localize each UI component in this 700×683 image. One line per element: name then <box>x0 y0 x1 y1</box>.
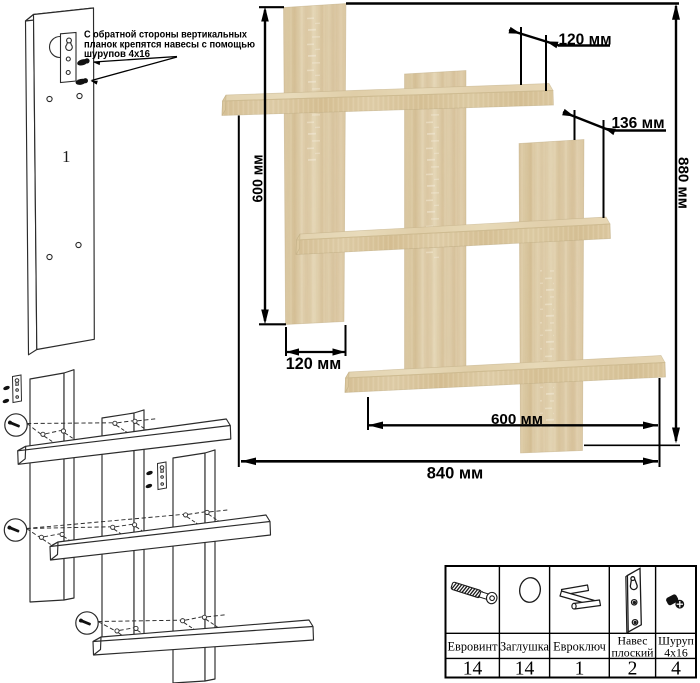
svg-text:1: 1 <box>575 659 585 680</box>
svg-text:14: 14 <box>463 659 483 680</box>
svg-text:880 мм: 880 мм <box>675 157 691 209</box>
svg-text:1: 1 <box>62 147 71 166</box>
svg-text:Евровинт: Евровинт <box>448 640 499 654</box>
svg-text:плоский: плоский <box>612 646 655 660</box>
svg-text:120 мм: 120 мм <box>286 355 341 373</box>
svg-text:Евроключ: Евроключ <box>553 640 606 654</box>
svg-text:4: 4 <box>671 659 681 680</box>
svg-text:120 мм: 120 мм <box>558 31 611 48</box>
svg-text:840 мм: 840 мм <box>427 464 484 482</box>
svg-text:600 мм: 600 мм <box>251 155 267 203</box>
svg-text:136 мм: 136 мм <box>611 115 664 132</box>
svg-text:600 мм: 600 мм <box>491 411 543 428</box>
svg-text:2: 2 <box>628 659 638 680</box>
svg-text:14: 14 <box>515 659 535 680</box>
svg-text:Заглушка: Заглушка <box>500 640 550 654</box>
svg-text:4х16: 4х16 <box>664 646 688 660</box>
